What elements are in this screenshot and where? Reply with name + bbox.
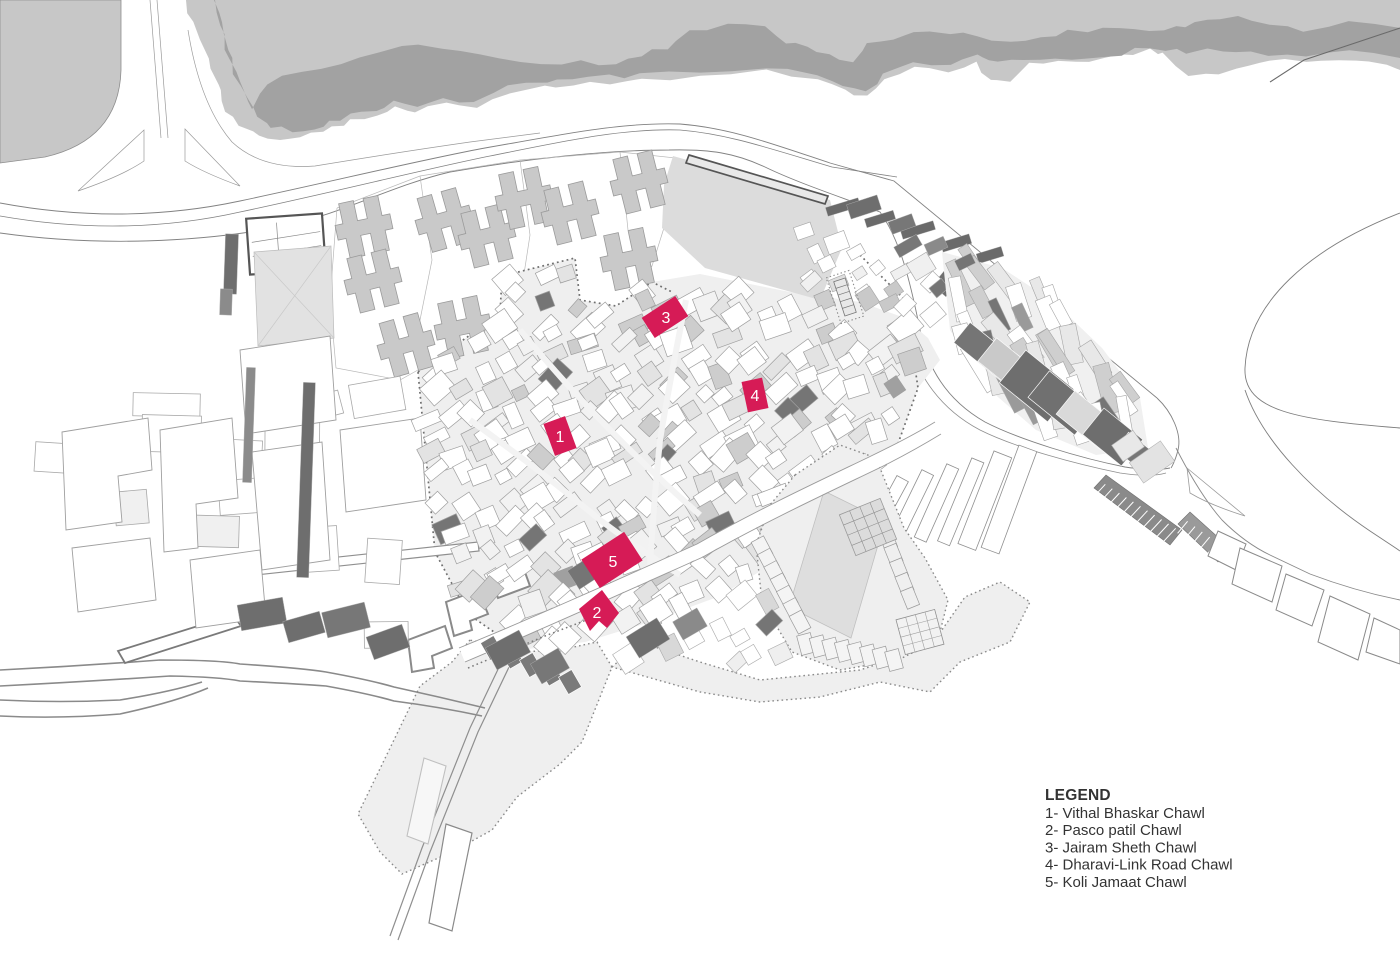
svg-text:1- Vithal Bhaskar Chawl: 1- Vithal Bhaskar Chawl (1045, 805, 1205, 822)
svg-text:4- Dharavi-Link Road Chawl: 4- Dharavi-Link Road Chawl (1045, 857, 1233, 874)
svg-text:3: 3 (662, 310, 671, 327)
svg-text:2- Pasco patil Chawl: 2- Pasco patil Chawl (1045, 822, 1182, 839)
svg-text:1: 1 (556, 429, 565, 446)
svg-text:3- Jairam Sheth Chawl: 3- Jairam Sheth Chawl (1045, 839, 1197, 856)
svg-text:4: 4 (751, 388, 760, 405)
svg-text:LEGEND: LEGEND (1045, 787, 1111, 804)
svg-text:5- Koli Jamaat Chawl: 5- Koli Jamaat Chawl (1045, 874, 1187, 891)
svg-text:2: 2 (593, 605, 602, 622)
svg-text:5: 5 (609, 554, 618, 571)
